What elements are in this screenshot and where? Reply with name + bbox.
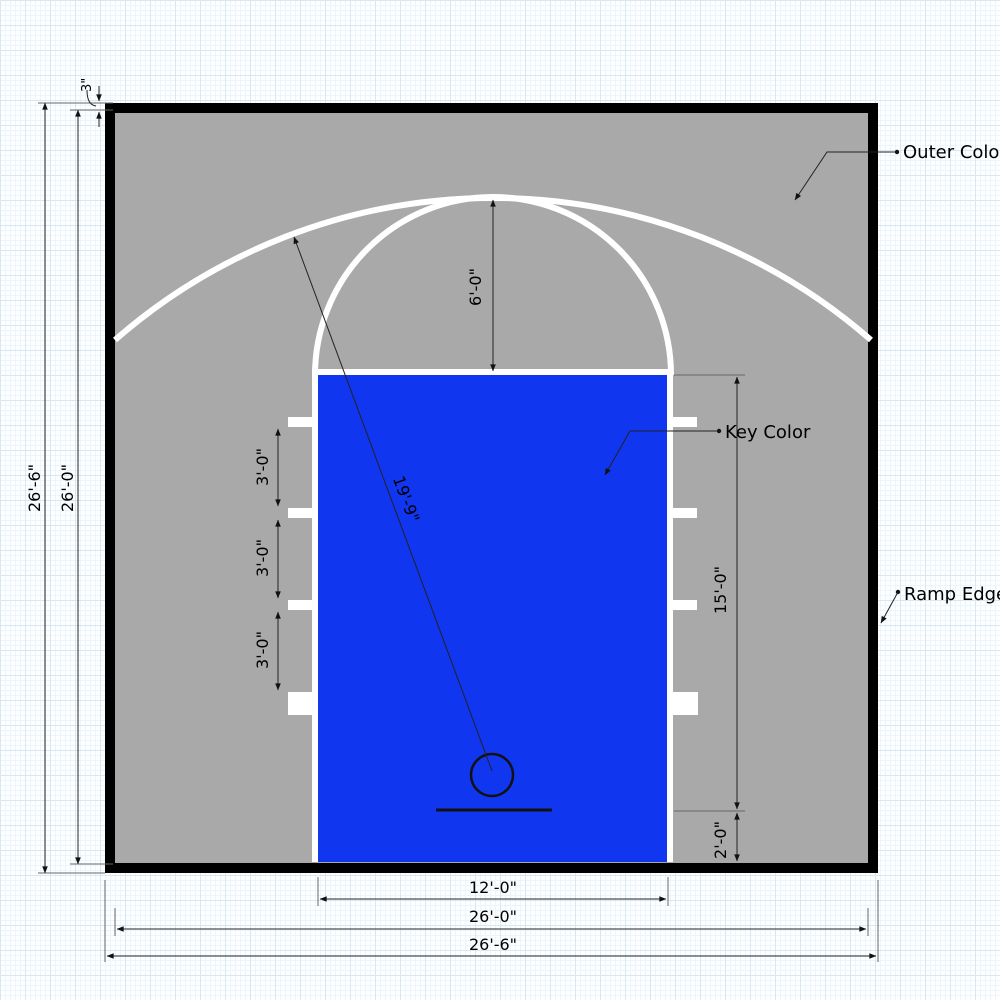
dim-text-lane-spacing-2: 3'-0"	[253, 539, 272, 577]
dim-border-thickness: 3"	[80, 78, 99, 127]
label-text-key-color: Key Color	[725, 422, 811, 443]
lane-hash-mark	[672, 417, 697, 427]
key-surface	[318, 375, 667, 862]
dim-text-court-height-outer: 26'-6"	[25, 464, 44, 512]
court-surfaces	[105, 103, 878, 873]
lane-block-right	[672, 692, 698, 715]
dim-text-court-width-inner: 26'-0"	[469, 907, 517, 926]
dim-text-free-throw-radius: 6'-0"	[466, 268, 485, 306]
dim-text-baseline-offset: 2'-0"	[711, 821, 730, 859]
label-ramp-edges: Ramp Edges	[881, 584, 1000, 623]
dim-text-lane-spacing-3: 3'-0"	[253, 631, 272, 669]
dim-court-width-inner: 26'-0"	[117, 907, 866, 929]
label-text-outer-color: Outer Color	[903, 142, 1000, 163]
lane-hash-mark	[288, 508, 313, 518]
lane-hash-mark	[672, 600, 697, 610]
dim-key-width: 12'-0"	[320, 878, 666, 899]
dim-court-height-inner: 26'-0"	[58, 110, 78, 864]
lane-hash-mark	[672, 508, 697, 518]
court-diagram-canvas: 3" 26'-6" 26'-0" 6'-0" 19'-9" 3'-0" 3'-0…	[0, 0, 1000, 1000]
dim-text-court-height-inner: 26'-0"	[58, 464, 77, 512]
dim-court-width-outer: 26'-6"	[107, 935, 876, 956]
lane-block-left	[288, 692, 313, 715]
dim-court-height-outer: 26'-6"	[25, 103, 45, 873]
court-diagram: 3" 26'-6" 26'-0" 6'-0" 19'-9" 3'-0" 3'-0…	[0, 0, 1000, 1000]
lane-hash-mark	[288, 417, 313, 427]
dim-text-key-width: 12'-0"	[469, 878, 517, 897]
lane-hash-mark	[288, 600, 313, 610]
label-text-ramp-edges: Ramp Edges	[904, 584, 1000, 605]
dim-text-border-thickness: 3"	[80, 78, 95, 92]
dim-text-court-width-outer: 26'-6"	[469, 935, 517, 954]
dim-text-key-length: 15'-0"	[711, 566, 730, 614]
dim-text-lane-spacing-1: 3'-0"	[253, 448, 272, 486]
